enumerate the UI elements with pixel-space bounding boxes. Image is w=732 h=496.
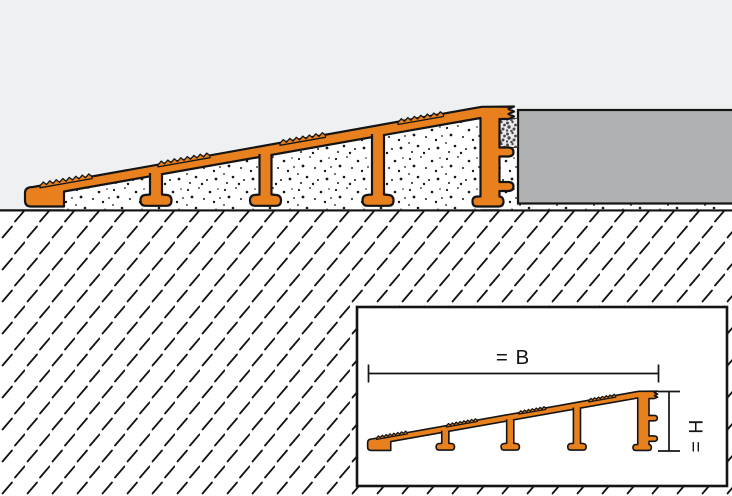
width-dimension-label: = B: [496, 346, 530, 369]
technical-drawing: = B = H: [0, 0, 732, 496]
inset-detail-box: = B = H: [357, 307, 727, 486]
height-dimension-label: = H: [686, 419, 708, 453]
cross-section-svg: = B = H: [0, 0, 732, 496]
grout-joint: [500, 119, 518, 148]
floor-tile: [518, 110, 732, 204]
inset-border: [357, 307, 727, 486]
